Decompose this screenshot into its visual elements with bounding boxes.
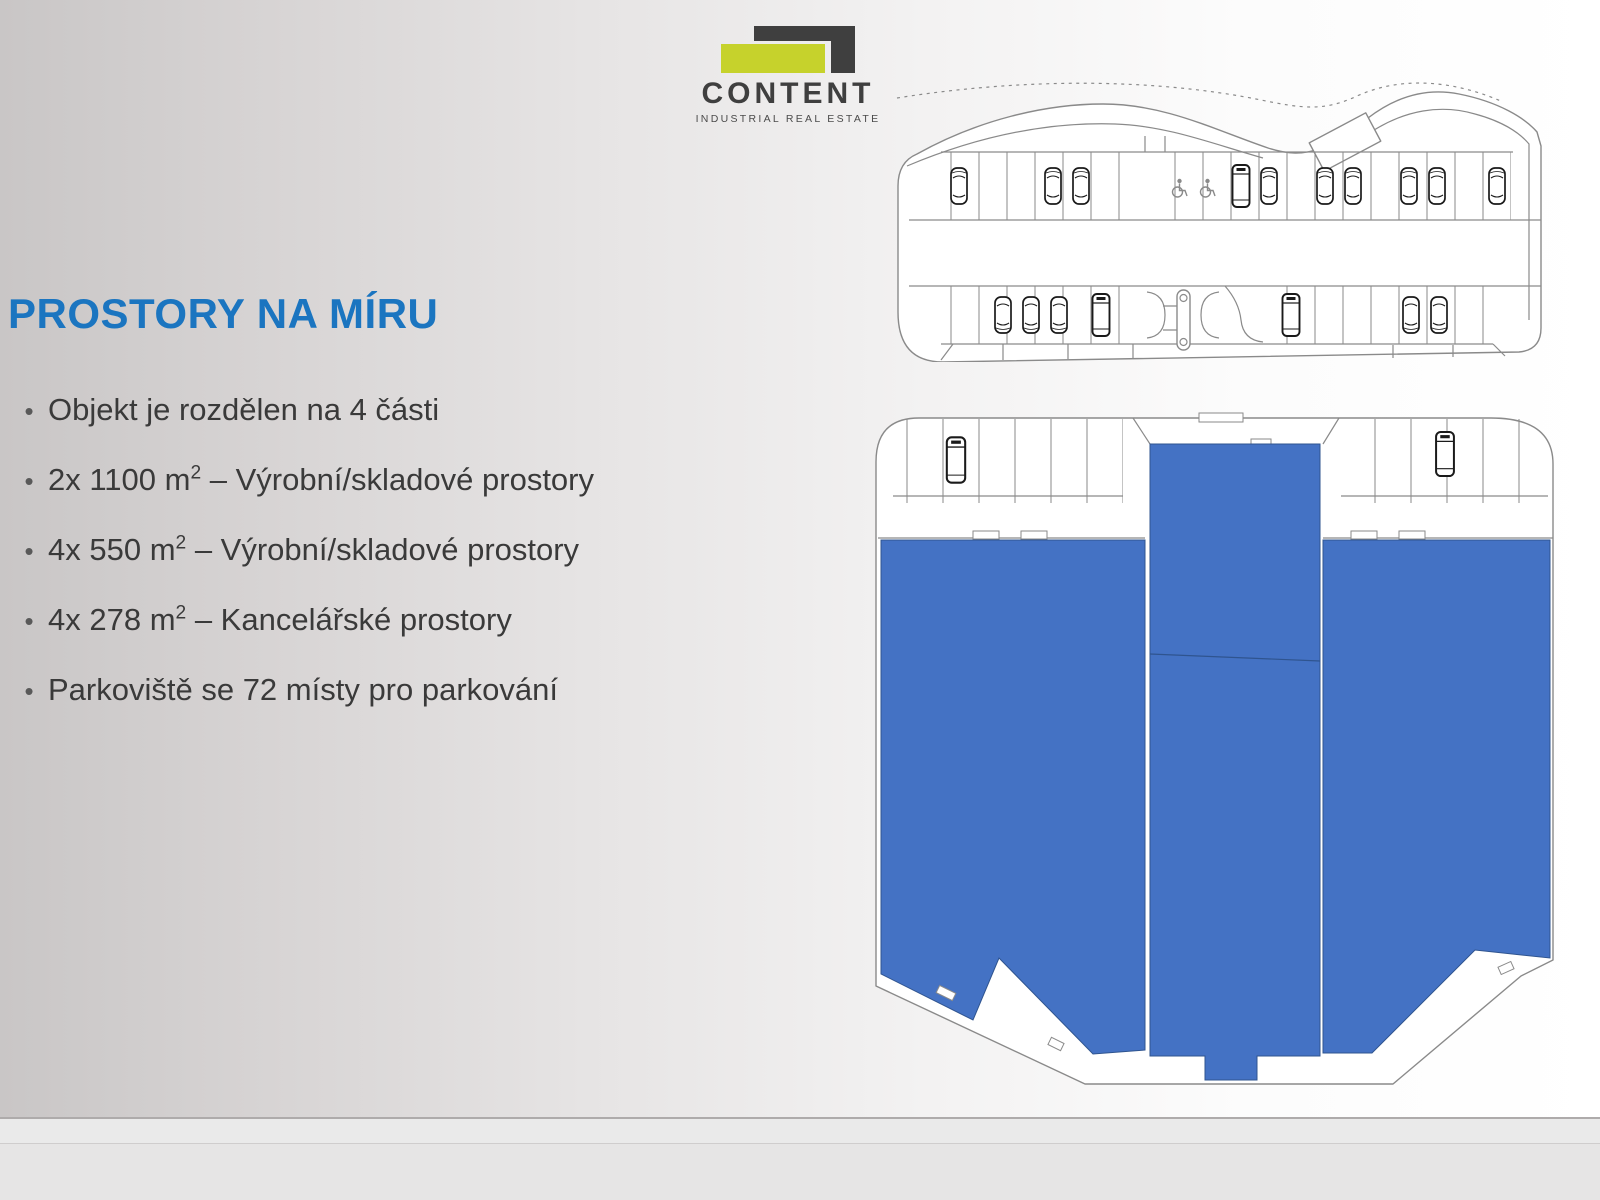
bullet-text: Parkoviště se 72 místy pro parkování	[48, 672, 558, 708]
van-icon	[1283, 294, 1300, 336]
bullet-item: • 4x 278 m2 – Kancelářské prostory	[10, 602, 810, 672]
bullet-text: Objekt je rozdělen na 4 části	[48, 392, 439, 428]
page-title: PROSTORY NA MÍRU	[8, 290, 438, 338]
car-icon	[1051, 297, 1067, 333]
bullet-item: • Parkoviště se 72 místy pro parkování	[10, 672, 810, 742]
car-icon	[1045, 168, 1061, 204]
door-mark	[1399, 531, 1425, 539]
van-icon	[1436, 432, 1454, 476]
car-icon	[1431, 297, 1447, 333]
building-floor-plan	[853, 398, 1560, 1092]
bullet-text: 4x 550 m2 – Výrobní/skladové prostory	[48, 532, 579, 568]
car-icon	[995, 297, 1011, 333]
slide: CONTENT INDUSTRIAL REAL ESTATE PROSTORY …	[0, 0, 1600, 1200]
unit-center	[1150, 444, 1320, 1080]
car-icon	[951, 168, 967, 204]
bullet-dot: •	[10, 606, 48, 637]
footer-band-lower	[0, 1143, 1600, 1200]
door-mark	[973, 531, 999, 539]
car-icon	[1317, 168, 1333, 204]
logo-green-shape	[721, 44, 825, 73]
car-icon	[1345, 168, 1361, 204]
car-icon	[1073, 168, 1089, 204]
bullet-item: • 4x 550 m2 – Výrobní/skladové prostory	[10, 532, 810, 602]
door-mark	[1351, 531, 1377, 539]
car-icon	[1403, 297, 1419, 333]
parking-stalls-top-right	[1165, 152, 1511, 220]
car-icon	[1261, 168, 1277, 204]
loading-bays-left	[893, 419, 1123, 503]
car-icon	[1429, 168, 1445, 204]
bullet-dot: •	[10, 676, 48, 707]
footer-band-upper	[0, 1117, 1600, 1143]
parking-lot-plan	[853, 68, 1553, 362]
bullet-text: 2x 1100 m2 – Výrobní/skladové prostory	[48, 462, 594, 498]
bullet-item: • Objekt je rozdělen na 4 části	[10, 392, 810, 462]
bullet-item: • 2x 1100 m2 – Výrobní/skladové prostory	[10, 462, 810, 532]
parking-island	[1177, 290, 1190, 350]
car-icon	[1489, 168, 1505, 204]
bullet-text: 4x 278 m2 – Kancelářské prostory	[48, 602, 512, 638]
parking-stalls-bottom-right	[1283, 286, 1491, 344]
van-icon	[1233, 165, 1250, 207]
bullet-dot: •	[10, 466, 48, 497]
car-icon	[1023, 297, 1039, 333]
bullet-dot: •	[10, 396, 48, 427]
van-icon	[947, 437, 965, 482]
bullet-dot: •	[10, 536, 48, 567]
door-mark	[1021, 531, 1047, 539]
content-logo-mark	[688, 8, 888, 76]
parking-stalls-top-left	[945, 152, 1143, 220]
roof-tab	[1199, 413, 1243, 422]
van-icon	[1093, 294, 1110, 336]
bullet-list: • Objekt je rozdělen na 4 části • 2x 110…	[10, 392, 810, 742]
car-icon	[1401, 168, 1417, 204]
